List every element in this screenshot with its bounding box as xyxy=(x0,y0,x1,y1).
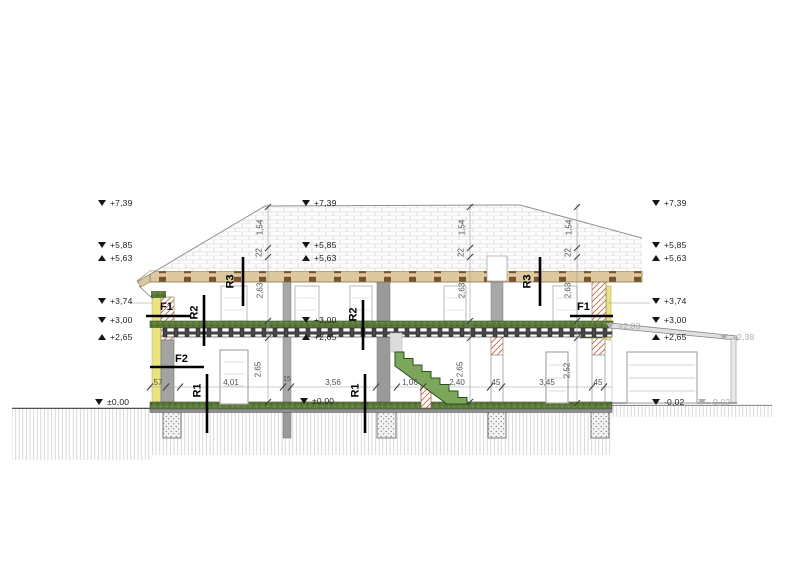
elevation-marker-left-000: ±0,00 xyxy=(95,397,129,407)
level-down-icon xyxy=(606,323,614,329)
level-down-icon xyxy=(98,242,106,248)
elevation-marker-center-265: +2,65 xyxy=(302,332,337,342)
elevation-marker-left-300: +3,00 xyxy=(98,315,133,325)
dim-265-room1: 2,65 xyxy=(254,355,265,385)
level-down-icon xyxy=(302,200,310,206)
elevation-marker-right-585: +5,85 xyxy=(652,240,687,250)
elevation-marker-gray-283: +2,83 xyxy=(606,321,641,331)
dim-22-left: 22 xyxy=(255,238,266,268)
label-r1-mid: R1 xyxy=(350,376,363,406)
dim-15: 15 xyxy=(270,376,304,383)
label-f1-left: F1 xyxy=(160,301,173,313)
elevation-marker-left-563: +5,63 xyxy=(98,253,133,263)
level-down-icon xyxy=(98,298,106,304)
label-f2: F2 xyxy=(175,353,188,365)
level-up-icon xyxy=(98,334,106,340)
level-down-icon xyxy=(720,334,728,340)
level-down-icon xyxy=(652,298,660,304)
label-r3-left: R3 xyxy=(225,267,238,297)
elevation-marker-center-000: ±0,00 xyxy=(300,396,334,406)
level-down-icon xyxy=(652,399,660,405)
section-drawing xyxy=(0,0,800,565)
dim-263-mid: 2,63 xyxy=(458,276,469,306)
level-down-icon xyxy=(302,317,310,323)
section-drawing-canvas: +7,39 +5,85 +5,63 +3,74 +3,00 +2,65 ±0,0… xyxy=(0,0,800,565)
dim-22-right: 22 xyxy=(564,238,575,268)
elevation-marker-center-300: +3,00 xyxy=(302,315,337,325)
dim-263-right: 2,63 xyxy=(564,276,575,306)
upper-floor-slab xyxy=(150,321,613,337)
level-up-icon xyxy=(302,334,310,340)
level-down-icon xyxy=(95,399,103,405)
level-down-icon xyxy=(98,317,106,323)
level-up-icon xyxy=(652,334,660,340)
garage-door xyxy=(627,352,697,403)
level-up-icon xyxy=(652,255,660,261)
elevation-marker-center-585: +5,85 xyxy=(302,240,337,250)
dim-45a: 45 xyxy=(479,378,513,387)
level-down-icon xyxy=(98,200,106,206)
label-r2-left: R2 xyxy=(189,298,202,328)
elevation-marker-left-585: +5,85 xyxy=(98,240,133,250)
level-up-icon xyxy=(302,255,310,261)
dim-57: 57 xyxy=(141,378,175,387)
elevation-marker-right-300: +3,00 xyxy=(652,315,687,325)
level-down-icon xyxy=(698,399,706,405)
dim-265-room2: 2,65 xyxy=(456,355,467,385)
elevation-marker-center-563: +5,63 xyxy=(302,253,337,263)
dim-106: 1,06 xyxy=(393,378,427,387)
elevation-marker-left-374: +3,74 xyxy=(98,296,133,306)
elevation-marker-left-739: +7,39 xyxy=(98,198,133,208)
label-r3-right: R3 xyxy=(522,267,535,297)
elevation-marker-center-739: +7,39 xyxy=(302,198,337,208)
level-down-icon xyxy=(302,242,310,248)
elevation-marker-right-002: -0,02 xyxy=(652,397,684,407)
dim-45b: 45 xyxy=(581,378,615,387)
elevation-marker-left-265: +2,65 xyxy=(98,332,133,342)
elevation-marker-right-265: +2,65 xyxy=(652,332,687,342)
chimney xyxy=(487,256,507,281)
elevation-marker-right-563: +5,63 xyxy=(652,253,687,263)
dim-252-room3: 2,52 xyxy=(563,356,574,386)
level-down-icon xyxy=(652,242,660,248)
garage-post xyxy=(731,339,736,403)
label-f1-right: F1 xyxy=(577,301,590,313)
elevation-marker-right-739: +7,39 xyxy=(652,198,687,208)
dim-345: 3,45 xyxy=(530,378,564,387)
label-r1-left: R1 xyxy=(192,376,205,406)
dim-22-mid: 22 xyxy=(457,238,468,268)
level-down-icon xyxy=(652,200,660,206)
elevation-marker-gray-002: -0,02 xyxy=(698,397,730,407)
level-down-icon xyxy=(300,398,308,404)
label-r2-mid: R2 xyxy=(348,300,361,330)
dim-401: 4,01 xyxy=(214,378,248,387)
dim-356: 3,56 xyxy=(316,378,350,387)
level-up-icon xyxy=(98,255,106,261)
elevation-marker-right-374: +3,74 xyxy=(652,296,687,306)
ground-floor-door xyxy=(220,350,248,404)
elevation-marker-gray-238: +2,38 xyxy=(720,332,755,342)
dim-263-left: 2,63 xyxy=(256,276,267,306)
ground-floor-slab xyxy=(150,402,612,413)
level-down-icon xyxy=(652,317,660,323)
